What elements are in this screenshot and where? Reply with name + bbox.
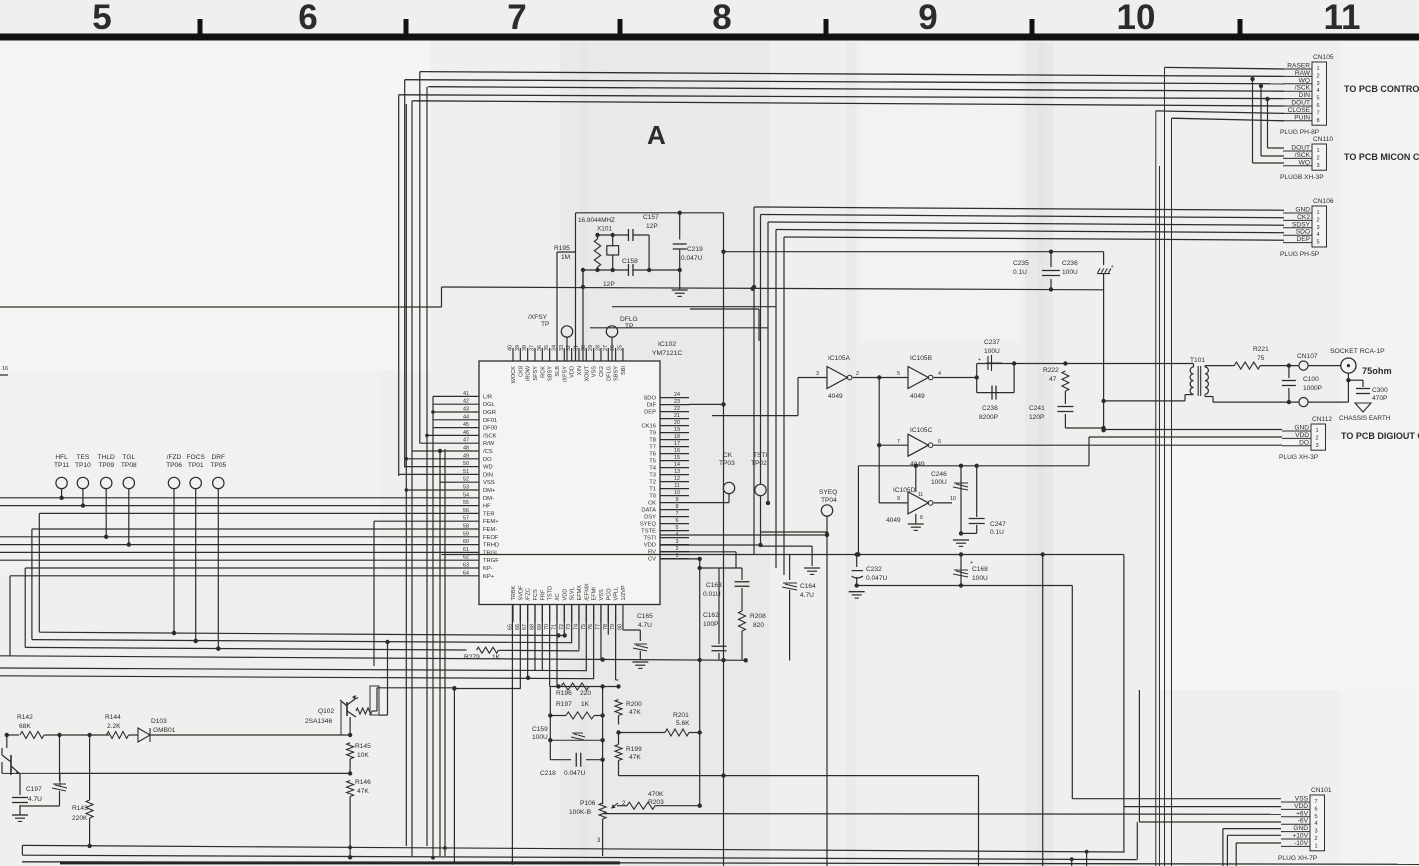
svg-text:VSS: VSS: [483, 480, 495, 486]
svg-text:10: 10: [1117, 0, 1156, 37]
svg-text:+6V: +6V: [1296, 810, 1309, 817]
svg-text:3: 3: [1317, 163, 1320, 169]
svg-text:X101: X101: [597, 226, 612, 233]
svg-text:62: 62: [463, 555, 469, 561]
svg-text:26: 26: [610, 345, 616, 351]
svg-text:45: 45: [463, 422, 469, 428]
svg-text:GND: GND: [1295, 207, 1310, 214]
svg-text:100U: 100U: [532, 734, 548, 741]
svg-text:GMB01: GMB01: [153, 727, 176, 734]
svg-text:100U: 100U: [1062, 269, 1078, 276]
svg-text:TRBK: TRBK: [511, 585, 517, 600]
svg-text:5: 5: [1317, 240, 1320, 246]
svg-text:C246: C246: [931, 471, 947, 478]
svg-text:VSS: VSS: [1295, 796, 1309, 803]
svg-text:27: 27: [603, 345, 609, 351]
svg-text:2: 2: [676, 546, 679, 552]
svg-text:3: 3: [676, 539, 679, 545]
svg-text:6: 6: [1315, 806, 1318, 812]
svg-text:PUIN: PUIN: [1294, 114, 1310, 121]
svg-text:/EFMX: /EFMX: [584, 583, 590, 600]
svg-text:L/R: L/R: [483, 394, 492, 400]
svg-text:DFLG: DFLG: [606, 366, 612, 381]
svg-text:TP10: TP10: [75, 462, 91, 469]
svg-text:/ROW: /ROW: [526, 365, 532, 381]
svg-text:1: 1: [1316, 428, 1319, 434]
svg-text:TRHD: TRHD: [483, 543, 499, 549]
svg-text:8200P: 8200P: [979, 414, 999, 421]
svg-text:TP03: TP03: [719, 460, 735, 467]
svg-text:100K-B: 100K-B: [569, 809, 592, 816]
svg-text:5: 5: [676, 525, 679, 531]
svg-text:PLUG XH-3P: PLUG XH-3P: [1279, 454, 1319, 461]
svg-text:/SCK: /SCK: [483, 433, 497, 439]
svg-text:T6: T6: [649, 452, 656, 458]
svg-text:18: 18: [674, 434, 680, 440]
svg-text:XOUT: XOUT: [584, 365, 590, 381]
svg-text:-10V: -10V: [1294, 840, 1309, 847]
svg-text:TP05: TP05: [210, 462, 226, 469]
svg-text:40: 40: [508, 345, 514, 351]
svg-text:14: 14: [674, 462, 680, 468]
svg-text:41: 41: [463, 391, 469, 397]
svg-text:7: 7: [1317, 110, 1320, 116]
svg-text:22: 22: [674, 406, 680, 412]
svg-text:T1: T1: [649, 487, 656, 493]
svg-text:4: 4: [1317, 88, 1320, 94]
svg-text:CN110: CN110: [1313, 136, 1333, 143]
svg-text:7: 7: [507, 0, 526, 37]
svg-text:C237: C237: [984, 339, 1000, 346]
svg-text:DFLG: DFLG: [620, 316, 638, 323]
svg-text:3: 3: [1316, 443, 1319, 449]
svg-text:0.047U: 0.047U: [681, 255, 703, 262]
svg-text:1: 1: [1315, 843, 1318, 849]
svg-text:HF: HF: [483, 504, 491, 510]
svg-text:C157: C157: [643, 214, 659, 221]
svg-text:23: 23: [674, 399, 680, 405]
svg-text:TP08: TP08: [121, 462, 137, 469]
svg-text:75ohm: 75ohm: [1362, 366, 1392, 376]
svg-text:8: 8: [1317, 118, 1320, 124]
svg-text:33: 33: [559, 345, 565, 351]
svg-text:60: 60: [463, 539, 469, 545]
svg-text:TRGL: TRGL: [483, 550, 499, 556]
svg-text:16: 16: [674, 448, 680, 454]
svg-text:CN101: CN101: [1311, 787, 1332, 794]
svg-text:T7: T7: [649, 445, 656, 451]
svg-text:TO PCB MICON CN5: TO PCB MICON CN5: [1344, 152, 1419, 162]
svg-text:25: 25: [617, 345, 623, 351]
svg-text:VPLL: VPLL: [614, 587, 620, 601]
svg-text:16.9044MHZ: 16.9044MHZ: [578, 217, 615, 224]
svg-text:TP: TP: [541, 321, 550, 328]
svg-text:52: 52: [463, 477, 469, 483]
svg-text:0.01U: 0.01U: [703, 591, 721, 598]
svg-text:2: 2: [1317, 217, 1320, 223]
svg-text:VDD: VDD: [1295, 432, 1309, 439]
svg-text:TP01: TP01: [188, 462, 204, 469]
svg-text:7: 7: [676, 511, 679, 517]
svg-text:DOUT: DOUT: [1291, 100, 1310, 107]
svg-text:IC105D: IC105D: [893, 487, 916, 494]
svg-text:2: 2: [1316, 435, 1319, 441]
svg-text:46: 46: [463, 430, 469, 436]
svg-text:R199: R199: [626, 746, 642, 753]
svg-text:R196: R196: [556, 690, 572, 697]
svg-text:T5: T5: [649, 459, 656, 465]
svg-text:120P: 120P: [1029, 414, 1045, 421]
svg-text:DATA: DATA: [641, 508, 656, 514]
svg-text:RAW: RAW: [1295, 70, 1311, 77]
svg-text:FEM+: FEM+: [483, 519, 499, 525]
svg-text:DOUT: DOUT: [1291, 145, 1310, 152]
svg-text:61: 61: [463, 547, 469, 553]
svg-text:0.1U: 0.1U: [1013, 269, 1027, 276]
svg-text:/IC: /IC: [555, 593, 561, 600]
svg-text:21: 21: [674, 413, 680, 419]
svg-text:GND: GND: [1294, 425, 1309, 432]
svg-text:PLUG XH-7P: PLUG XH-7P: [1278, 855, 1318, 862]
svg-text:P106: P106: [580, 800, 596, 807]
svg-text:TP09: TP09: [98, 462, 114, 469]
svg-text:SBSY: SBSY: [614, 366, 620, 381]
svg-text:TRGF: TRGF: [483, 558, 499, 564]
svg-text:KP-: KP-: [483, 566, 493, 572]
svg-text:0.047U: 0.047U: [564, 770, 586, 777]
svg-text:FOCS: FOCS: [187, 454, 206, 461]
svg-text:37: 37: [529, 345, 535, 351]
svg-text:4: 4: [1315, 821, 1318, 827]
svg-text:+10V: +10V: [1292, 833, 1308, 840]
svg-text:IC105A: IC105A: [828, 355, 851, 362]
svg-text:C159: C159: [532, 726, 548, 733]
svg-text:6: 6: [298, 0, 317, 37]
svg-text:R197: R197: [556, 701, 572, 708]
svg-text:1: 1: [1317, 66, 1320, 72]
svg-text:59: 59: [463, 531, 469, 537]
svg-text:220K: 220K: [72, 815, 88, 822]
svg-text:470K: 470K: [648, 791, 664, 798]
svg-text:CLOSE: CLOSE: [1288, 107, 1311, 114]
svg-text:TSTI: TSTI: [643, 536, 656, 542]
svg-text:DSY: DSY: [644, 515, 656, 521]
svg-text:20: 20: [674, 420, 680, 426]
svg-text:+: +: [978, 357, 981, 363]
svg-text:2: 2: [1317, 73, 1320, 79]
svg-text:RASER: RASER: [1287, 63, 1310, 70]
svg-text:C219: C219: [687, 246, 703, 253]
svg-text:C162: C162: [703, 612, 719, 619]
svg-text:100U: 100U: [984, 348, 1000, 355]
svg-text:RCK: RCK: [540, 366, 546, 378]
svg-text:SVDF: SVDF: [518, 585, 524, 601]
svg-text:CV: CV: [648, 557, 656, 563]
svg-text:64: 64: [463, 570, 469, 576]
svg-text:TO PCB DIGIOUT CN: TO PCB DIGIOUT CN: [1341, 431, 1419, 441]
svg-text:4.7U: 4.7U: [638, 622, 652, 629]
svg-text:49: 49: [463, 453, 469, 459]
svg-text:R/W: R/W: [483, 441, 495, 447]
svg-text:C300: C300: [1372, 387, 1388, 394]
svg-text:/FZC: /FZC: [526, 588, 532, 600]
svg-text:10: 10: [674, 490, 680, 496]
svg-text:C164: C164: [800, 583, 816, 590]
svg-text:42: 42: [463, 399, 469, 405]
svg-text:EFMI: EFMI: [592, 587, 598, 601]
svg-text:EFMX: EFMX: [577, 585, 583, 601]
svg-text:48: 48: [463, 446, 469, 452]
svg-text:6: 6: [1317, 103, 1320, 109]
svg-text:5: 5: [1315, 814, 1318, 820]
svg-text:T8: T8: [649, 438, 656, 444]
svg-text:CK2: CK2: [1297, 214, 1310, 221]
svg-text:43: 43: [463, 407, 469, 413]
svg-text:WOCK: WOCK: [511, 366, 517, 384]
svg-text:DIF: DIF: [647, 403, 657, 409]
svg-text:DO: DO: [1299, 439, 1309, 446]
svg-text:5.6K: 5.6K: [676, 720, 690, 727]
svg-text:38: 38: [522, 345, 528, 351]
svg-text:100U: 100U: [972, 575, 988, 582]
svg-text:C158: C158: [622, 258, 638, 265]
svg-text:12P: 12P: [646, 223, 658, 230]
svg-text:CK: CK: [648, 501, 656, 507]
svg-text:IC105C: IC105C: [910, 427, 933, 434]
svg-text:1K: 1K: [581, 701, 590, 708]
svg-text:C165: C165: [637, 613, 653, 620]
svg-text:24: 24: [674, 392, 680, 398]
svg-text:FEOF: FEOF: [483, 535, 499, 541]
svg-text:4049: 4049: [828, 393, 843, 400]
svg-text:30: 30: [581, 345, 587, 351]
svg-text:/SCK: /SCK: [1295, 85, 1311, 92]
svg-text:DGR: DGR: [483, 410, 496, 416]
svg-text:SDO: SDO: [1296, 229, 1310, 236]
svg-text:R200: R200: [626, 701, 642, 708]
svg-text:3: 3: [816, 371, 819, 377]
svg-text:TP06: TP06: [166, 462, 182, 469]
svg-text:TER: TER: [483, 511, 495, 517]
svg-text:A: A: [647, 120, 666, 150]
svg-text:7: 7: [1315, 799, 1318, 805]
svg-text:15: 15: [674, 455, 680, 461]
svg-text:0.047U: 0.047U: [866, 575, 888, 582]
svg-text:VDD: VDD: [570, 366, 576, 378]
svg-text:4049: 4049: [910, 393, 925, 400]
svg-text:CK8: CK8: [518, 366, 524, 377]
svg-text:CHASSIS EARTH: CHASSIS EARTH: [1339, 415, 1391, 422]
svg-text:SBSY: SBSY: [548, 366, 554, 381]
svg-text:47: 47: [463, 438, 469, 444]
svg-text:DM+: DM+: [483, 488, 496, 494]
svg-text:WQ: WQ: [1299, 77, 1310, 84]
svg-text:47K: 47K: [629, 754, 641, 761]
svg-text:XIN: XIN: [577, 366, 583, 375]
svg-text:6: 6: [938, 439, 941, 445]
svg-text:28: 28: [595, 345, 601, 351]
svg-text:470P: 470P: [1372, 395, 1388, 402]
svg-text:2: 2: [1317, 155, 1320, 161]
svg-text:R142: R142: [17, 714, 33, 721]
svg-text:VDD: VDD: [562, 589, 568, 601]
svg-text:C241: C241: [1029, 405, 1045, 412]
svg-text:PCO: PCO: [606, 588, 612, 601]
svg-text:DF00: DF00: [483, 426, 497, 432]
svg-text:FRF: FRF: [540, 589, 546, 600]
svg-text:VDD: VDD: [644, 543, 656, 549]
svg-text:50: 50: [463, 461, 469, 467]
svg-text:0.1U: 0.1U: [990, 529, 1004, 536]
svg-text:R221: R221: [1253, 346, 1269, 353]
svg-text:T101: T101: [1190, 357, 1205, 364]
svg-text:4: 4: [1317, 232, 1320, 238]
svg-text:YM7121C: YM7121C: [652, 350, 682, 357]
svg-text:/CS: /CS: [483, 449, 493, 455]
svg-text:TES: TES: [76, 454, 89, 461]
svg-text:TP11: TP11: [54, 462, 70, 469]
svg-text:/XFSY: /XFSY: [528, 314, 548, 321]
svg-text:1: 1: [1317, 148, 1320, 154]
svg-text:5: 5: [1317, 96, 1320, 102]
svg-text:CN106: CN106: [1313, 198, 1334, 205]
svg-text:29: 29: [588, 345, 594, 351]
svg-text:9: 9: [676, 497, 679, 503]
svg-text:SDO: SDO: [643, 396, 656, 402]
svg-text:51: 51: [463, 469, 469, 475]
svg-text:75: 75: [1257, 355, 1265, 362]
svg-text:C168: C168: [972, 566, 988, 573]
svg-text:WD: WD: [483, 465, 493, 471]
svg-text:34: 34: [551, 345, 557, 351]
svg-text:TP: TP: [625, 323, 634, 330]
svg-text:R195: R195: [554, 245, 570, 252]
svg-text:4049: 4049: [886, 517, 901, 524]
svg-text:36: 36: [537, 345, 543, 351]
svg-text:5: 5: [897, 371, 900, 377]
svg-text:T3: T3: [649, 473, 656, 479]
svg-text:57: 57: [463, 516, 469, 522]
svg-text:19: 19: [674, 427, 680, 433]
svg-text:47: 47: [1049, 376, 1057, 383]
svg-text:47K: 47K: [629, 709, 641, 716]
svg-text:11: 11: [1324, 0, 1361, 37]
svg-text:CK: CK: [723, 452, 733, 459]
svg-text:8: 8: [676, 504, 679, 510]
svg-text:T4: T4: [649, 466, 657, 472]
svg-text:7: 7: [897, 439, 900, 445]
svg-text:56: 56: [463, 508, 469, 514]
svg-text:DIN: DIN: [1299, 92, 1311, 99]
svg-text:5: 5: [92, 0, 111, 37]
svg-text:2SA1346: 2SA1346: [305, 718, 332, 725]
svg-text:1M: 1M: [561, 254, 570, 261]
svg-text:VDD: VDD: [1294, 803, 1308, 810]
svg-text:HFL: HFL: [55, 454, 68, 461]
svg-text:WQ: WQ: [1299, 159, 1310, 166]
svg-text:VSS: VSS: [592, 366, 598, 377]
svg-text:T2: T2: [649, 480, 656, 486]
svg-text:DEP: DEP: [1296, 236, 1310, 243]
svg-text:68K: 68K: [19, 723, 31, 730]
svg-text:100P: 100P: [703, 621, 719, 628]
svg-text:4.7U: 4.7U: [28, 796, 42, 803]
svg-text:PLUGB XH-3P: PLUGB XH-3P: [1280, 174, 1324, 181]
svg-text:10K: 10K: [357, 752, 369, 759]
svg-text:39: 39: [515, 345, 521, 351]
svg-text:CN112: CN112: [1312, 416, 1332, 423]
svg-text:R222: R222: [1043, 367, 1059, 374]
svg-text:R144: R144: [105, 714, 121, 721]
svg-text:2: 2: [856, 371, 859, 377]
svg-text:SFSY: SFSY: [533, 366, 539, 381]
svg-text:TO PCB CONTROL C: TO PCB CONTROL C: [1344, 84, 1419, 94]
svg-text:C197: C197: [26, 786, 42, 793]
svg-text:DM-: DM-: [483, 496, 494, 502]
svg-text:SYEQ: SYEQ: [640, 522, 657, 528]
svg-text:DF01: DF01: [483, 418, 497, 424]
svg-text:KP+: KP+: [483, 574, 495, 580]
svg-text:SDSY: SDSY: [1292, 221, 1311, 228]
svg-text:11: 11: [918, 492, 923, 498]
svg-text:T0: T0: [649, 494, 656, 500]
svg-text:SLB: SLB: [555, 366, 561, 377]
svg-text:4.7U: 4.7U: [800, 592, 814, 599]
svg-text:Q102: Q102: [318, 708, 334, 715]
svg-text:3: 3: [1317, 225, 1320, 231]
svg-text:C232: C232: [866, 566, 882, 573]
svg-text:35: 35: [544, 345, 550, 351]
svg-text:16: 16: [2, 366, 8, 372]
svg-text:IC105B: IC105B: [910, 355, 933, 362]
svg-text:TP02: TP02: [751, 460, 767, 467]
svg-text:DRF: DRF: [212, 454, 226, 461]
svg-text:CK2: CK2: [599, 366, 605, 377]
svg-text:DGL: DGL: [483, 402, 496, 408]
svg-text:12P: 12P: [603, 281, 615, 288]
svg-text:R145: R145: [355, 743, 371, 750]
svg-text:SLVL: SLVL: [570, 587, 576, 600]
svg-text:31: 31: [573, 345, 579, 351]
svg-text:55: 55: [463, 500, 469, 506]
svg-text:D103: D103: [151, 718, 167, 725]
svg-text:47K: 47K: [357, 788, 369, 795]
svg-text:GND: GND: [1293, 825, 1308, 832]
svg-text:CN107: CN107: [1297, 353, 1318, 360]
svg-text:R203: R203: [648, 799, 664, 806]
svg-text:1: 1: [1317, 210, 1320, 216]
svg-text:TSTE: TSTE: [641, 529, 656, 535]
svg-text:C100: C100: [1303, 376, 1319, 383]
svg-text:54: 54: [463, 492, 469, 498]
svg-text:1K: 1K: [492, 654, 501, 661]
svg-text:THLD: THLD: [98, 454, 115, 461]
svg-text:1/2VP: 1/2VP: [621, 585, 627, 601]
svg-text:R208: R208: [750, 613, 766, 620]
svg-text:3: 3: [1315, 829, 1318, 835]
svg-text:-6V: -6V: [1298, 818, 1309, 825]
svg-text:IC102: IC102: [658, 341, 676, 348]
svg-text:C235: C235: [1013, 260, 1029, 267]
svg-text:TSTI: TSTI: [753, 452, 767, 459]
svg-text:/FZD: /FZD: [167, 454, 182, 461]
svg-text:63: 63: [463, 563, 469, 569]
svg-text:TP04: TP04: [821, 497, 837, 504]
svg-text:820: 820: [753, 622, 764, 629]
svg-text:DEP: DEP: [644, 410, 656, 416]
svg-text:4: 4: [938, 371, 941, 377]
svg-text:2: 2: [1315, 836, 1318, 842]
